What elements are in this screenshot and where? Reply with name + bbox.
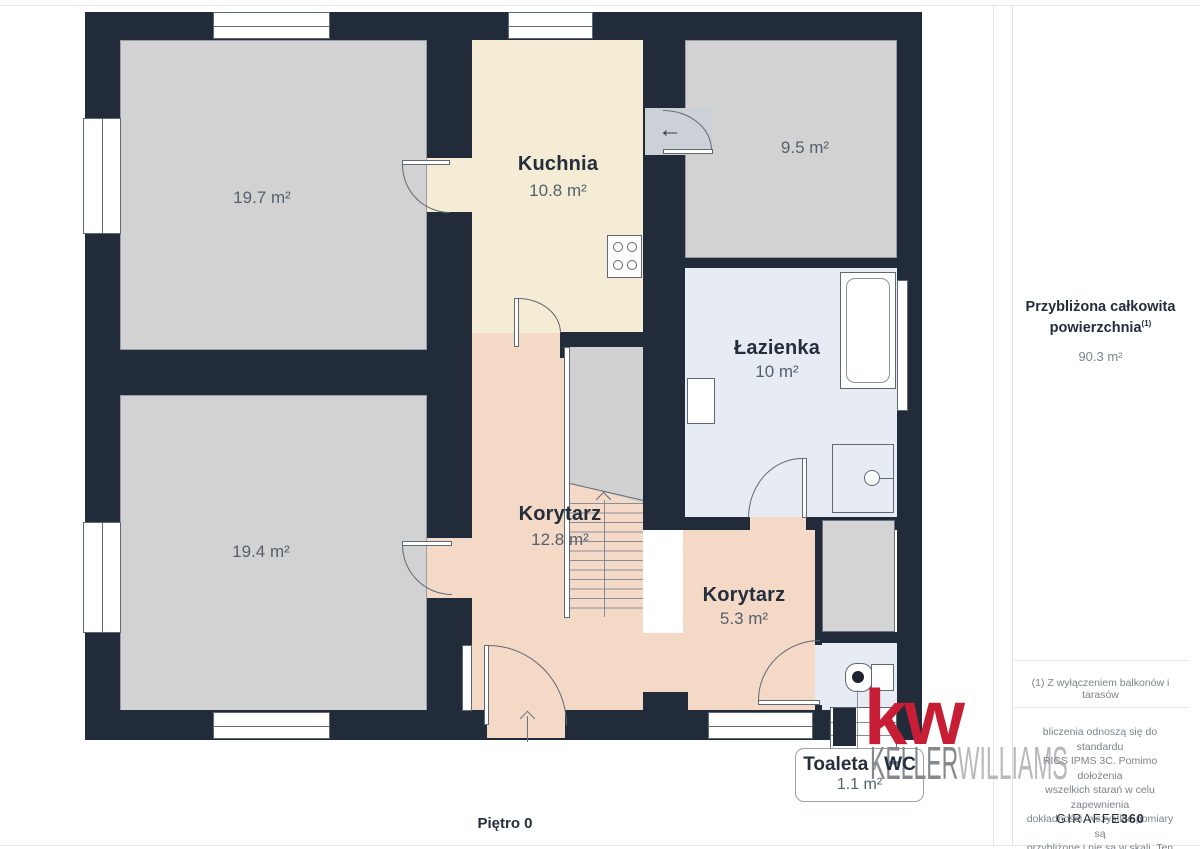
total-area-footnote-marker: (1) [1142,319,1152,328]
window-kitchen-top [508,12,593,39]
corridor-main-name: Korytarz [490,503,630,526]
door-leaf-room3 [663,149,713,154]
sidebar-left-border [1012,5,1013,845]
window-room1-left [83,118,121,234]
giraffe360-logo: GIRAFFE360 [1013,812,1188,826]
sidebar-disclaimer: bliczenia odnoszą się do standardu RICS … [1025,725,1175,849]
toilet-callout-primary: Toaleta [803,754,868,775]
bath-niche [897,280,908,411]
room-9-5-area: 9.5 m² [735,138,875,158]
sink-icon [687,378,715,424]
door-leaf-bathroom [802,458,807,518]
toilet-callout-separator: / [874,754,879,775]
door-leaf-room1 [402,160,450,165]
window-room1-top [213,12,330,39]
kitchen-area: 10.8 m² [488,181,628,201]
doorway-bath [750,517,806,530]
kitchen-name: Kuchnia [488,153,628,176]
door-leaf-room2 [402,541,452,546]
wall-closet-toilet [815,632,897,643]
total-area-heading-line1: Przybliżona całkowita [1026,299,1176,315]
corridor-small-name: Korytarz [674,584,814,607]
page-top-border [0,5,1200,6]
bathtub-icon [840,272,896,389]
wall-corridor-bath [643,268,685,530]
sidebar-footnote: (1) Z wyłączeniem balkonów i tarasów [1013,677,1188,701]
toilet-callout-area: 1.1 m² [795,776,924,794]
sidebar-divider-1 [1013,660,1188,661]
corridor-passage-floor [643,633,683,692]
wall-mid-left [85,350,472,395]
window-corridor-small-bottom [708,712,813,739]
door-leaf-kitchen [514,298,519,347]
room-19-4-area: 19.4 m² [191,542,331,562]
plan-card-right-border [993,5,994,845]
giraffe360-suffix: 360 [1121,812,1145,826]
shower-icon [832,444,894,513]
giraffe360-name: GIRAFFE [1056,812,1121,826]
bathroom-name: Łazienka [707,337,847,360]
page-bottom-border [0,845,1200,846]
toilet-dot-icon [852,671,864,683]
toilet-callout-label: Toaleta / WC [795,754,924,776]
wall-top [85,12,922,40]
window-entry-sidelight [462,645,472,711]
window-room2-left [83,522,121,633]
room-19-7-area: 19.7 m² [192,188,332,208]
toilet-callout-secondary: WC [884,754,916,775]
wall-passage-stub [643,692,688,712]
wall-room3-bath [643,258,897,268]
stairs-upper-landing [570,347,643,503]
callout-leader-line [857,690,858,748]
total-area-value: 90.3 m² [1018,349,1183,364]
window-room2-bottom [213,712,330,739]
total-area-heading: Przybliżona całkowita powierzchnia(1) [1018,297,1183,339]
bathroom-area: 10 m² [707,362,847,382]
stove-icon [607,235,642,278]
corridor-small-area: 5.3 m² [674,609,814,629]
floorplan-page: ← 19.7 m² Kuchnia 10.8 m² [0,0,1200,849]
door-leaf-entrance [484,645,489,725]
wardrobe-closet [822,520,895,632]
door-leaf-toilet [758,700,820,705]
corridor-main-area: 12.8 m² [490,530,630,550]
total-area-heading-line2: powierzchnia [1050,320,1142,336]
sidebar-divider-2 [1013,707,1188,708]
floor-level-label: Piętro 0 [430,815,580,832]
